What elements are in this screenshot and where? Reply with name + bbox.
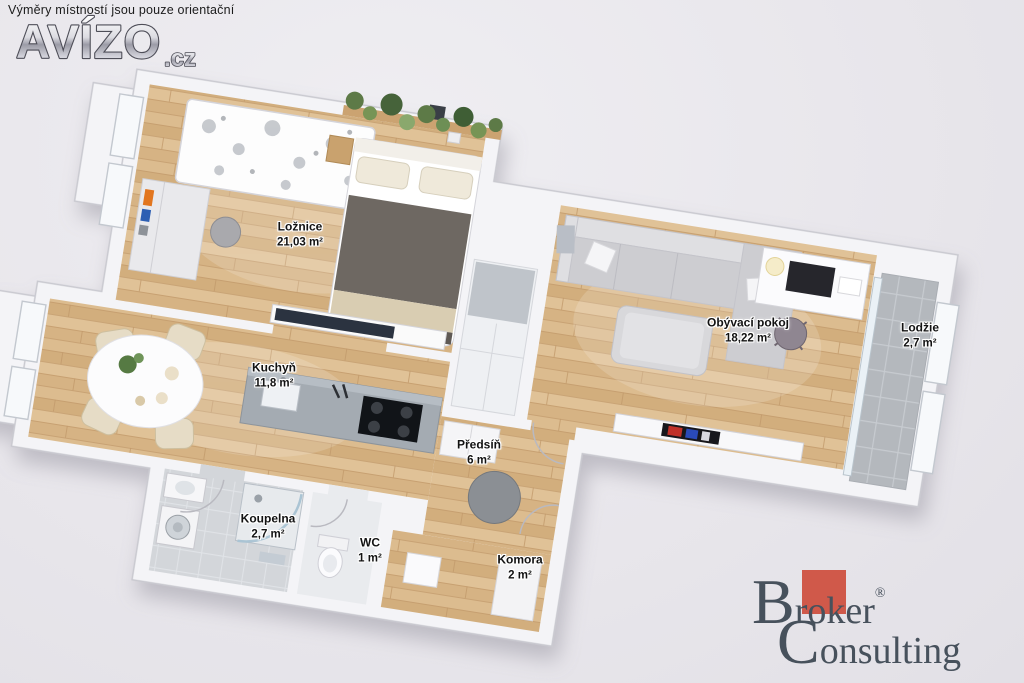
nightstand-icon bbox=[326, 135, 354, 164]
avizo-logo-text: AVÍZO bbox=[16, 15, 161, 68]
floorplan-screenshot: Výměry místností jsou pouze orientační A… bbox=[0, 0, 1024, 683]
registered-mark: ® bbox=[875, 586, 886, 601]
storage-box-icon bbox=[403, 553, 441, 588]
broker-consulting-logo: Broker® Consulting bbox=[752, 570, 1012, 674]
avizo-logo: AVÍZO .cz bbox=[12, 13, 272, 75]
avizo-logo-suffix: .cz bbox=[164, 45, 196, 72]
broker-logo-line2: Consulting bbox=[777, 610, 1012, 674]
room-label-lodzie: Lodžie 2,7 m² bbox=[901, 321, 939, 352]
room-label-obyvaci-pokoj: Obývací pokoj 18,22 m² bbox=[707, 316, 789, 347]
room-label-koupelna: Koupelna 2,7 m² bbox=[241, 512, 296, 543]
room-label-predsin: Předsíň 6 m² bbox=[457, 438, 501, 469]
bookshelf-desk-icon bbox=[129, 179, 211, 281]
room-label-loznice: Ložnice 21,03 m² bbox=[277, 220, 323, 251]
room-label-wc: WC 1 m² bbox=[358, 536, 382, 567]
room-label-komora: Komora 2 m² bbox=[497, 553, 542, 584]
room-label-kuchyn: Kuchyň 11,8 m² bbox=[252, 361, 296, 392]
